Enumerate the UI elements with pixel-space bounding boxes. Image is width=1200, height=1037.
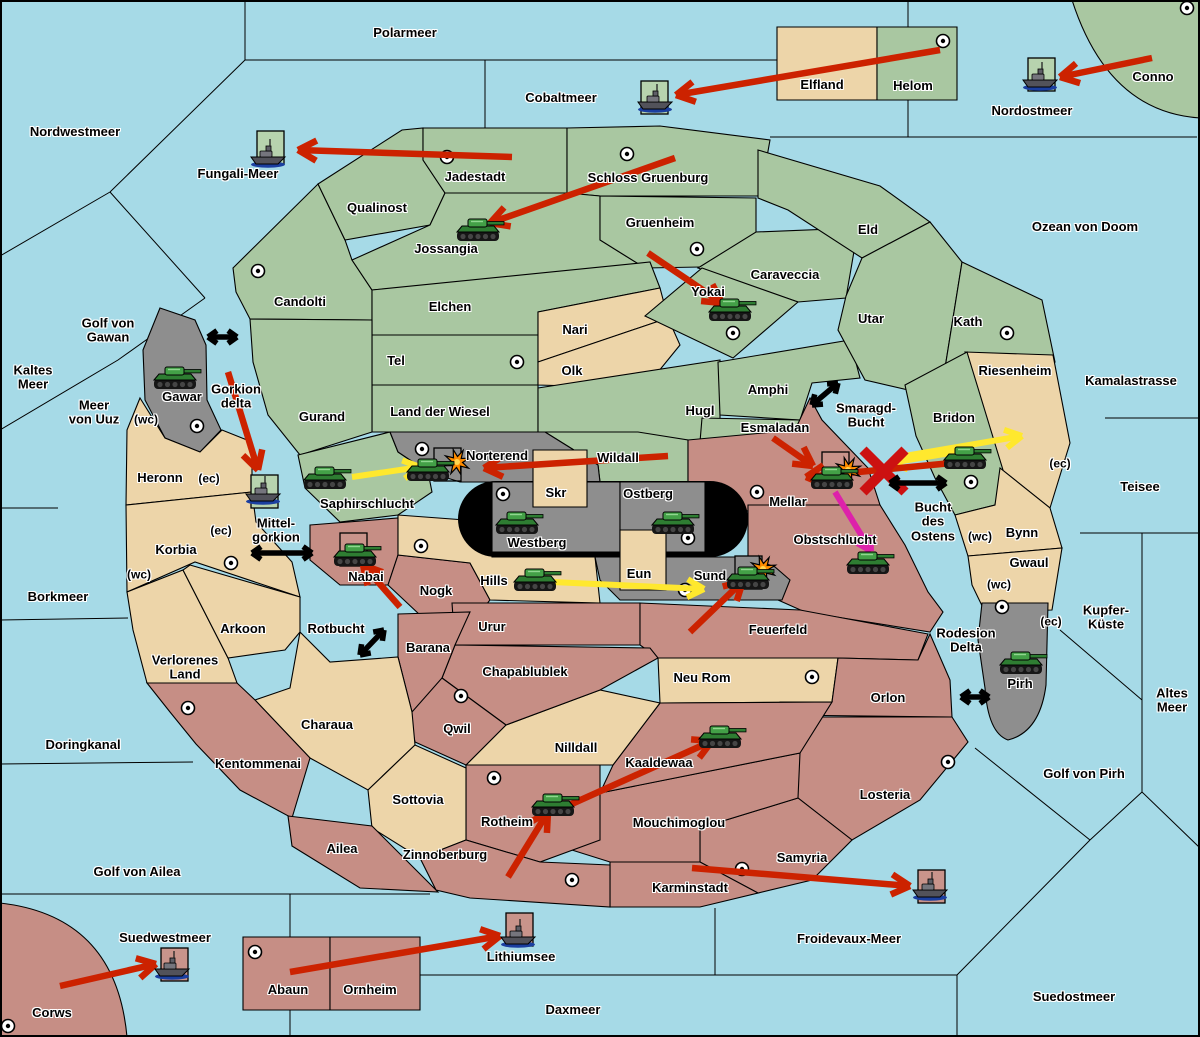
territory-eun[interactable] (620, 530, 666, 590)
territory-land-der-wiesel[interactable] (372, 385, 538, 432)
supply-center-icon (415, 540, 428, 553)
supply-center-icon (191, 420, 204, 433)
supply-center-icon (727, 327, 740, 340)
map-canvas[interactable] (0, 0, 1200, 1037)
supply-center-icon (252, 265, 265, 278)
supply-center-icon (488, 772, 501, 785)
territory-gwaul[interactable] (968, 548, 1062, 612)
supply-center-icon (416, 443, 429, 456)
territory-ornheim[interactable] (330, 937, 420, 1010)
supply-center-icon (621, 148, 634, 161)
supply-center-icon (937, 35, 950, 48)
territory-skr[interactable] (533, 450, 587, 507)
supply-center-icon (996, 601, 1009, 614)
supply-center-icon (691, 243, 704, 256)
supply-center-icon (1001, 327, 1014, 340)
supply-center-icon (566, 874, 579, 887)
supply-center-icon (249, 946, 262, 959)
supply-center-icon (751, 486, 764, 499)
territory-urur[interactable] (452, 603, 640, 645)
supply-center-icon (965, 476, 978, 489)
supply-center-icon (511, 356, 524, 369)
supply-center-icon (225, 557, 238, 570)
game-map[interactable]: PolarmeerNordwestmeerCobaltmeerFungali-M… (0, 0, 1200, 1037)
supply-center-icon (806, 671, 819, 684)
explosion-core (454, 459, 460, 465)
supply-center-icon (182, 702, 195, 715)
supply-center-icon (1181, 2, 1194, 15)
supply-center-icon (497, 488, 510, 501)
supply-center-icon (2, 1020, 15, 1033)
supply-center-icon (455, 690, 468, 703)
supply-center-icon (942, 756, 955, 769)
